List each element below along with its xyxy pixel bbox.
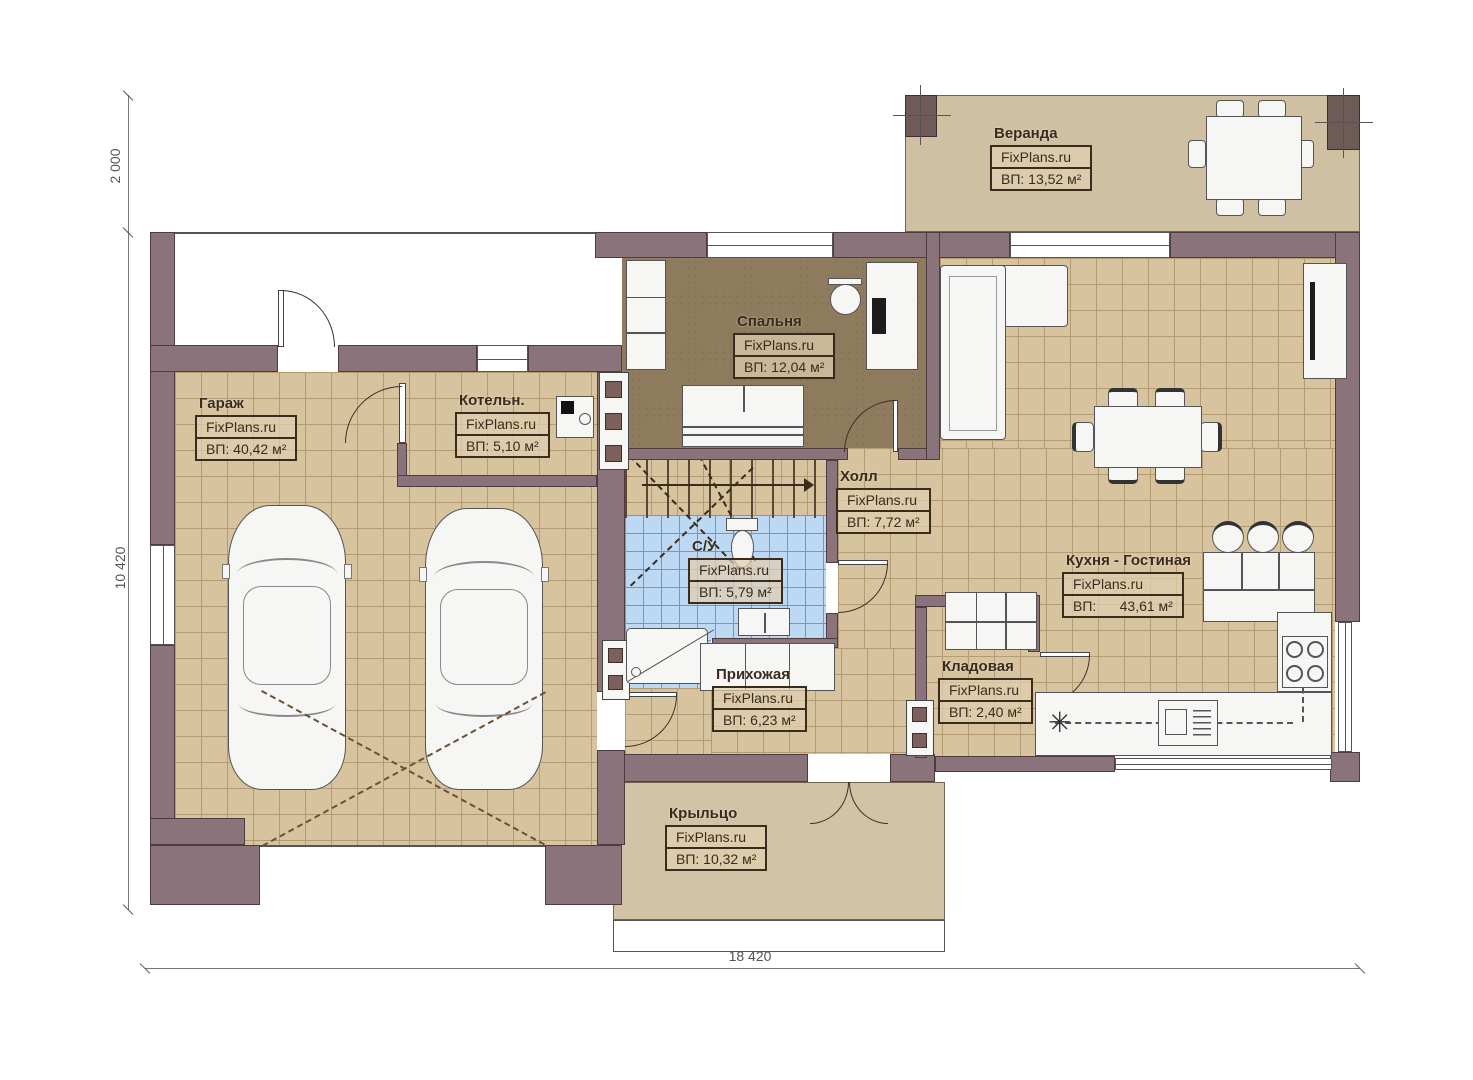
boiler-unit [556, 396, 594, 438]
brand-text: FixPlans.ru [940, 680, 1031, 702]
wardrobe [626, 260, 666, 370]
room-label-porch: Крыльцо FixPlans.ru ВП: 10,32 м² [665, 805, 767, 871]
car-mirror [222, 564, 230, 579]
wall [528, 345, 622, 372]
stairs-arrow-head [804, 478, 814, 492]
vent-shaft [599, 372, 629, 470]
room-area: ВП: 43,61 м² [1064, 596, 1182, 616]
axis-tick [1343, 88, 1344, 158]
room-plate: FixPlans.ru ВП: 5,79 м² [688, 558, 783, 604]
veranda-chair [1216, 198, 1244, 216]
room-area: ВП: 10,32 м² [667, 849, 765, 869]
room-plate: FixPlans.ru ВП: 12,04 м² [733, 333, 835, 379]
dining-chair [1072, 422, 1094, 452]
room-plate: FixPlans.ru ВП: 2,40 м² [938, 678, 1033, 724]
fridge-icon: ✳ [1048, 706, 1071, 739]
washer-icon [738, 608, 790, 636]
room-name: Спальня [737, 313, 835, 330]
room-plate: FixPlans.ru ВП: 43,61 м² [1062, 572, 1184, 618]
dining-table [1094, 406, 1202, 468]
garage-door-line [260, 845, 545, 847]
car-mirror [344, 564, 352, 579]
window [150, 545, 175, 645]
brand-text: FixPlans.ru [197, 417, 295, 439]
room-plate: FixPlans.ru ВП: 6,23 м² [712, 686, 807, 732]
brand-text: FixPlans.ru [690, 560, 781, 582]
car-mirror [541, 567, 549, 582]
room-label-hall: Холл FixPlans.ru ВП: 7,72 м² [836, 468, 931, 534]
brand-text: FixPlans.ru [992, 147, 1090, 169]
boiler-panel [561, 401, 574, 414]
room-name: Холл [840, 468, 931, 485]
wall [597, 750, 625, 845]
dimension-label-bottom: 18 420 [680, 948, 820, 964]
room-area: ВП: 13,52 м² [992, 169, 1090, 189]
room-label-veranda: Веранда FixPlans.ru ВП: 13,52 м² [990, 125, 1092, 191]
dimension-line-left [128, 95, 129, 910]
car [228, 505, 346, 790]
car-mirror [419, 567, 427, 582]
car-roof [440, 589, 528, 685]
door-opening [808, 754, 890, 782]
room-name: Кухня - Гостиная [1066, 552, 1191, 569]
room-plate: FixPlans.ru ВП: 7,72 м² [836, 488, 931, 534]
vent-shaft [906, 700, 934, 756]
wall [890, 754, 935, 782]
brand-text: FixPlans.ru [838, 490, 929, 512]
shower-icon [626, 628, 708, 684]
dimension-label-top-left: 2 000 [107, 136, 123, 196]
room-plate: FixPlans.ru ВП: 40,42 м² [195, 415, 297, 461]
brand-text: FixPlans.ru [1064, 574, 1182, 596]
door-opening [597, 692, 625, 750]
floor-plan: ✳ Веранда FixPlans.ru ВП: 13,52 м² Спаль… [0, 0, 1473, 1080]
porch-floor [613, 782, 945, 920]
room-name: Веранда [994, 125, 1092, 142]
room-area: ВП: 2,40 м² [940, 702, 1031, 722]
room-label-bathroom: С/У FixPlans.ru ВП: 5,79 м² [688, 538, 783, 604]
shelf-unit [945, 592, 1037, 650]
axis-tick [920, 85, 921, 145]
window [1115, 758, 1332, 770]
room-name: Прихожая [716, 666, 807, 683]
sofa-corner-vertical [940, 265, 1006, 440]
door-opening [278, 345, 338, 372]
room-area: ВП: 6,23 м² [714, 710, 805, 730]
room-name: Гараж [199, 395, 297, 412]
veranda-chair [1258, 198, 1286, 216]
brand-text: FixPlans.ru [457, 414, 548, 436]
room-area: ВП: 7,72 м² [838, 512, 929, 532]
bed [682, 385, 804, 447]
room-label-boiler: Котельн. FixPlans.ru ВП: 5,10 м² [455, 392, 550, 458]
pillar [905, 95, 937, 137]
window [1010, 232, 1170, 258]
axis-tick [1315, 122, 1373, 123]
wall [150, 345, 278, 372]
monitor-icon [872, 298, 886, 334]
room-area: ВП: 5,79 м² [690, 582, 781, 602]
room-name: С/У [692, 538, 783, 555]
room-label-storage: Кладовая FixPlans.ru ВП: 2,40 м² [938, 658, 1033, 724]
wall [595, 232, 707, 258]
wall [935, 756, 1115, 772]
tv-icon [1310, 282, 1315, 360]
wall [1330, 752, 1360, 782]
wall [926, 232, 940, 460]
wall [150, 845, 260, 905]
brand-text: FixPlans.ru [667, 827, 765, 849]
sink-icon [1158, 700, 1218, 746]
room-label-garage: Гараж FixPlans.ru ВП: 40,42 м² [195, 395, 297, 461]
room-plate: FixPlans.ru ВП: 5,10 м² [455, 412, 550, 458]
room-plate: FixPlans.ru ВП: 10,32 м² [665, 825, 767, 871]
room-area: ВП: 5,10 м² [457, 436, 548, 456]
room-name: Кладовая [942, 658, 1033, 675]
room-name: Котельн. [459, 392, 550, 409]
dimension-line-bottom [145, 968, 1360, 969]
room-label-bedroom: Спальня FixPlans.ru ВП: 12,04 м² [733, 313, 835, 379]
wall [833, 232, 1010, 258]
veranda-chair [1188, 140, 1206, 168]
bar-stool [1212, 521, 1244, 553]
room-label-kitchen-living: Кухня - Гостиная FixPlans.ru ВП: 43,61 м… [1062, 552, 1191, 618]
brand-text: FixPlans.ru [714, 688, 805, 710]
room-area: ВП: 12,04 м² [735, 357, 833, 377]
stairs-arrow-line [642, 484, 810, 486]
veranda-table [1206, 116, 1302, 200]
office-chair [830, 284, 861, 315]
window [707, 232, 833, 258]
car-roof [243, 586, 331, 685]
room-area: ВП: 40,42 м² [197, 439, 295, 459]
boiler-knob [579, 413, 591, 425]
window [477, 345, 528, 372]
wall [150, 818, 245, 845]
wall [622, 754, 808, 782]
dining-chair [1200, 422, 1222, 452]
wall [150, 232, 175, 545]
tv-unit [1303, 263, 1347, 379]
dimension-label-left: 10 420 [112, 533, 128, 603]
room-plate: FixPlans.ru ВП: 13,52 м² [990, 145, 1092, 191]
bar-stool [1247, 521, 1279, 553]
open-area [175, 232, 595, 345]
room-label-hallway: Прихожая FixPlans.ru ВП: 6,23 м² [712, 666, 807, 732]
bar-stool [1282, 521, 1314, 553]
stove-icon [1282, 636, 1328, 688]
window [1338, 622, 1352, 752]
wall [545, 845, 622, 905]
room-name: Крыльцо [669, 805, 767, 822]
wall [622, 448, 848, 460]
wall [338, 345, 477, 372]
brand-text: FixPlans.ru [735, 335, 833, 357]
car-rear-window [436, 691, 532, 717]
axis-tick [893, 115, 951, 116]
wall [1170, 232, 1360, 258]
wall [397, 475, 597, 487]
